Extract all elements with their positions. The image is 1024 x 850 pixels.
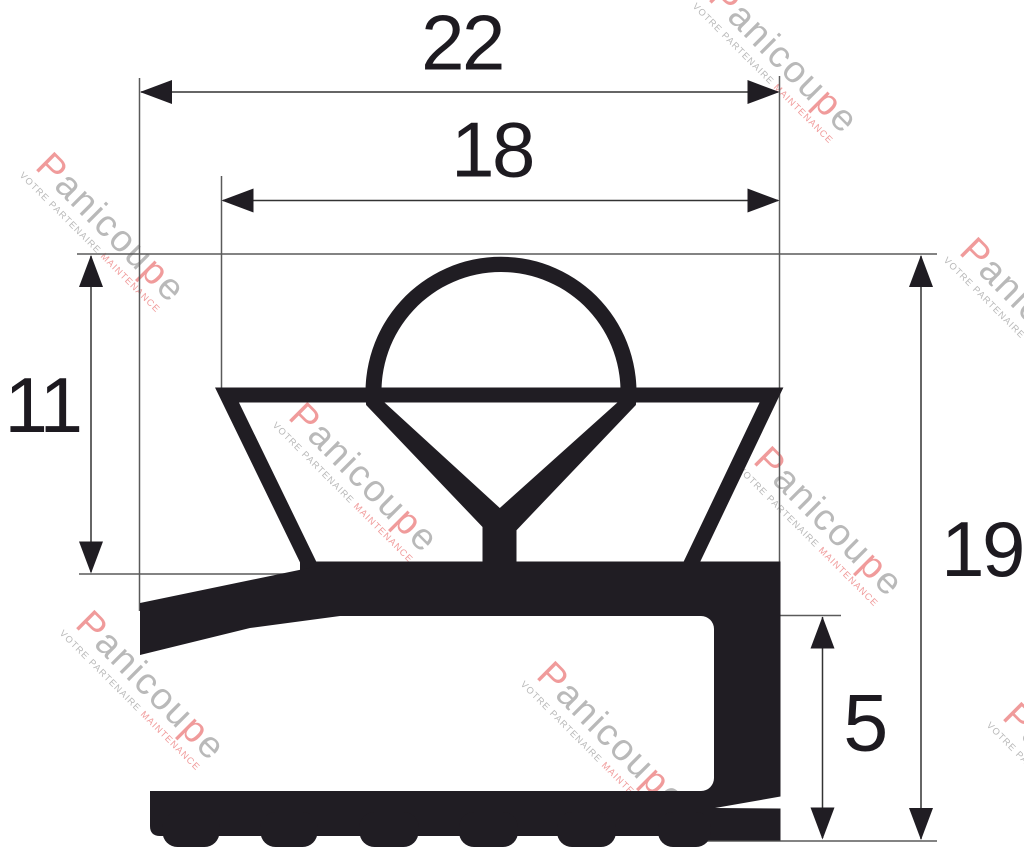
- svg-text:Panicoupe: Panicoupe: [952, 229, 1024, 395]
- svg-text:18: 18: [451, 106, 533, 194]
- svg-text:Panicoupe: Panicoupe: [995, 694, 1024, 850]
- svg-text:22: 22: [421, 0, 503, 87]
- svg-text:11: 11: [5, 361, 81, 449]
- svg-text:Panicoupe: Panicoupe: [701, 0, 867, 141]
- svg-text:Panicoupe: Panicoupe: [28, 144, 194, 310]
- svg-text:Panicoupe: Panicoupe: [281, 394, 447, 560]
- svg-text:19: 19: [941, 505, 1023, 593]
- svg-text:5: 5: [843, 679, 886, 769]
